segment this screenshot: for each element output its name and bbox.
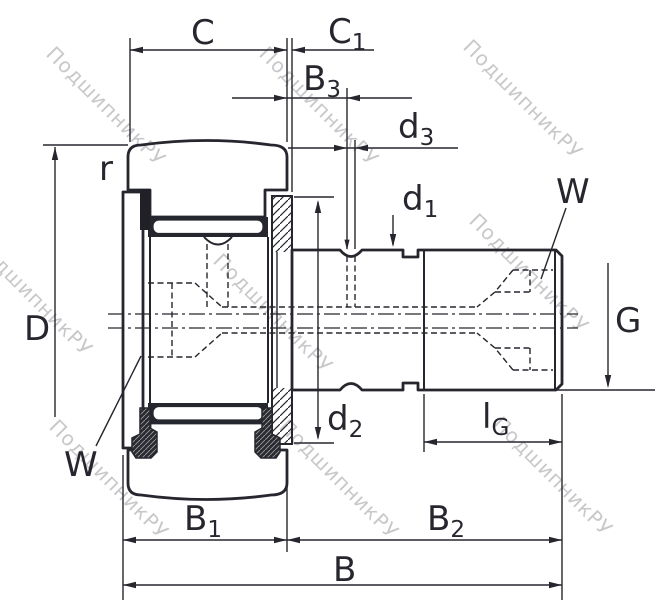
dim-label-C1: C1 bbox=[328, 12, 366, 56]
dim-label-d3: d3 bbox=[398, 107, 434, 151]
dim-label-D: D bbox=[24, 309, 50, 349]
dim-label-W-right: W bbox=[556, 172, 590, 212]
watermark: ПодшипникРУ bbox=[464, 209, 593, 338]
needle-roller-bottom bbox=[153, 407, 263, 421]
dim-label-C: C bbox=[191, 13, 215, 53]
flange-washer-hatch-top bbox=[272, 196, 292, 252]
dim-label-r: r bbox=[99, 149, 113, 189]
dim-label-d1: d1 bbox=[402, 179, 438, 223]
dim-label-lG: lG bbox=[482, 397, 509, 441]
left-socket-cone bbox=[195, 283, 222, 357]
dim-label-W-left: W bbox=[64, 445, 98, 485]
lube-hole-countersink bbox=[204, 237, 232, 245]
bearing-geometry bbox=[123, 141, 562, 500]
leader-W-left bbox=[96, 356, 141, 446]
bearing-drawing: ПодшипникРУ ПодшипникРУ ПодшипникРУ Подш… bbox=[0, 0, 655, 611]
dim-label-B1: B1 bbox=[184, 499, 222, 543]
dim-label-G: G bbox=[615, 301, 641, 341]
dim-label-B: B bbox=[333, 550, 356, 590]
needle-roller-top bbox=[153, 220, 263, 234]
hidden-detail-lines bbox=[148, 244, 553, 370]
centerlines bbox=[108, 314, 578, 328]
radial-hole-stud bbox=[347, 256, 355, 307]
right-socket-chamfer bbox=[495, 270, 513, 370]
dim-label-B3: B3 bbox=[303, 59, 341, 103]
technical-drawing-page: ПодшипникРУ ПодшипникРУ ПодшипникРУ Подш… bbox=[0, 0, 655, 611]
watermark: ПодшипникРУ bbox=[458, 35, 587, 164]
dim-label-d2: d2 bbox=[327, 399, 363, 443]
right-socket-counterbore bbox=[495, 292, 530, 348]
seal-top-left bbox=[140, 189, 150, 230]
right-socket-cone bbox=[477, 292, 495, 348]
dim-label-B2: B2 bbox=[427, 499, 465, 543]
